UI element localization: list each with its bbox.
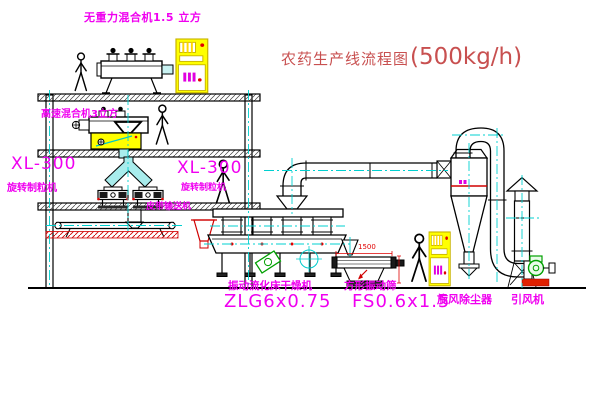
label-cyclone: 旋风除尘器	[437, 294, 492, 305]
person-figure-1	[75, 53, 86, 90]
label-belt-conveyor: 皮带输送机	[146, 203, 191, 212]
cyclone-mini-label	[459, 180, 462, 184]
label-granulator-left-model: XL-300	[11, 156, 76, 173]
label-granulator-left-name: 旋转制粒机	[7, 184, 57, 194]
label-high-speed-mixer: 高速混合机3立方	[41, 110, 118, 120]
label-gravity-mixer: 无重力混合机1.5 立方	[84, 12, 201, 23]
title-capacity: (500kg/h)	[410, 44, 522, 70]
y-pipe	[105, 157, 152, 187]
page-title: 农药生产线流程图(500kg/h)	[281, 44, 522, 70]
person-figure-2	[156, 105, 168, 144]
main-duct	[280, 161, 451, 199]
vibrator-motor	[256, 251, 281, 273]
label-screen-name: 方形振动筛	[344, 281, 397, 292]
fan-base	[522, 279, 549, 286]
label-granulator-mid-name: 旋转制粒机	[181, 184, 226, 193]
label-dryer-name: 振动流化床干燥机	[228, 281, 312, 292]
gravity-mixer-machine	[97, 48, 173, 93]
label-screen-model: FS0.6x1.5	[352, 293, 450, 311]
control-cabinet-1	[176, 39, 208, 93]
belt-conveyor-machine	[46, 222, 178, 238]
label-screen-dimension: 1500	[358, 244, 376, 251]
mixer-top-ports	[107, 48, 156, 61]
person-figure-4	[412, 234, 426, 281]
label-dryer-model: ZLG6x0.75	[224, 293, 332, 311]
label-draft-fan: 引风机	[511, 294, 544, 305]
control-cabinet-2	[429, 232, 450, 286]
conveyor-pit-hatch	[46, 232, 178, 239]
dryer-legs	[217, 253, 341, 277]
title-text: 农药生产线流程图	[281, 50, 409, 68]
label-granulator-mid-model: XL-300	[177, 160, 242, 177]
diagram-canvas: 无重力混合机1.5 立方 农药生产线流程图(500kg/h) 高速混合机3立方 …	[0, 0, 600, 403]
draft-fan-machine	[522, 256, 555, 286]
